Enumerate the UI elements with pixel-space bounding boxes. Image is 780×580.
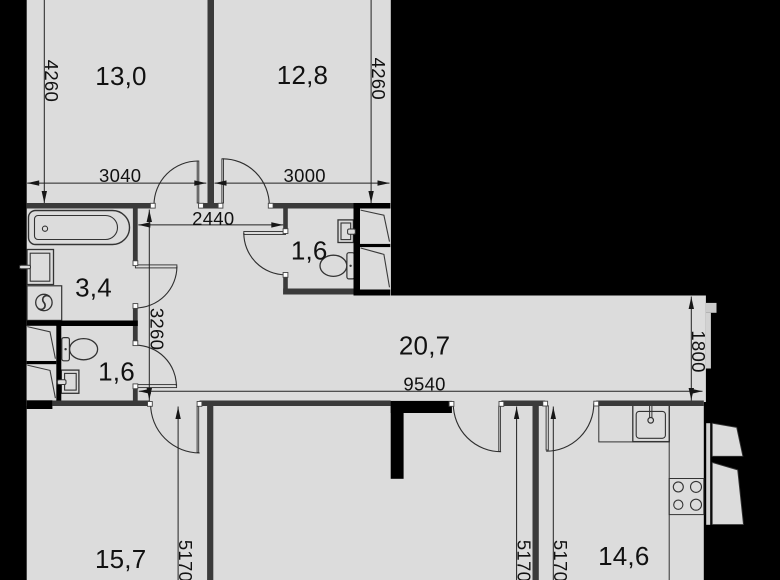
svg-text:4260: 4260 — [368, 58, 389, 100]
svg-text:9540: 9540 — [403, 373, 445, 394]
svg-text:3000: 3000 — [284, 165, 326, 186]
svg-text:14,6: 14,6 — [598, 541, 649, 571]
svg-text:13,0: 13,0 — [95, 61, 146, 91]
svg-text:5170: 5170 — [550, 540, 571, 580]
svg-text:15,7: 15,7 — [95, 544, 146, 574]
svg-text:20,7: 20,7 — [399, 331, 450, 361]
svg-text:1,6: 1,6 — [291, 236, 328, 266]
svg-text:3260: 3260 — [146, 308, 167, 350]
svg-text:1,6: 1,6 — [98, 356, 135, 386]
svg-text:3,4: 3,4 — [75, 273, 112, 303]
svg-text:3040: 3040 — [99, 165, 141, 186]
svg-text:1800: 1800 — [688, 330, 709, 372]
svg-text:2440: 2440 — [192, 208, 234, 229]
svg-text:12,8: 12,8 — [277, 60, 328, 90]
svg-text:4260: 4260 — [41, 60, 62, 102]
svg-text:5170: 5170 — [513, 540, 534, 580]
svg-text:5170: 5170 — [175, 540, 196, 580]
